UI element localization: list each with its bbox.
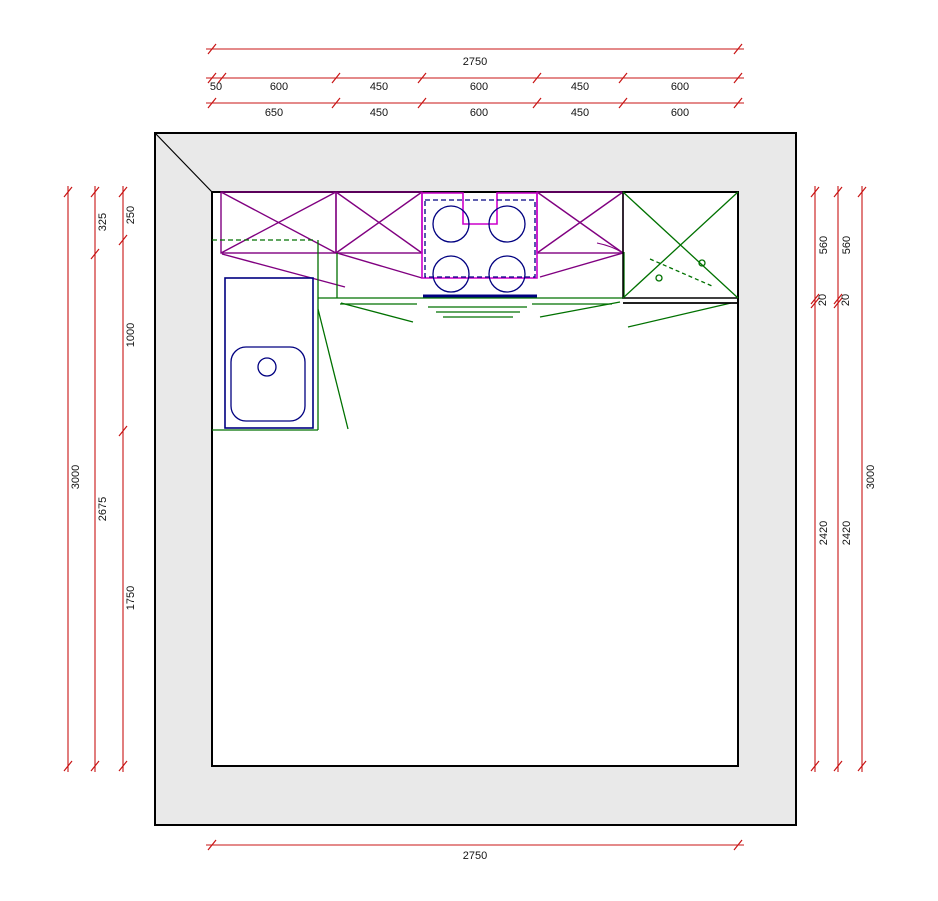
sink-outline	[225, 278, 313, 428]
base-door-swing-line	[318, 309, 348, 429]
dim-label: 2420	[841, 521, 853, 545]
dim-label: 3000	[865, 465, 877, 489]
burner-bottom-left	[433, 256, 469, 292]
dimension-top: 2750 50 600 450 600 450 600 650 450 600 …	[206, 44, 744, 119]
cabinet-door-swing-line	[540, 253, 623, 277]
dim-label: 1750	[125, 586, 137, 610]
dimension-left: 3000 325 2675 250 1000 1750	[64, 186, 137, 772]
dim-label: 325	[97, 213, 109, 231]
dim-label: 50	[210, 81, 222, 93]
tall-cabinet	[623, 192, 738, 303]
dim-label: 2750	[463, 56, 487, 68]
dim-label: 3000	[70, 465, 82, 489]
dimension-right: 560 20 2420 560 20 2420 3000	[811, 186, 877, 772]
hinge-symbol	[656, 275, 662, 281]
dimension-bottom: 2750	[206, 840, 744, 862]
dim-label: 1000	[125, 323, 137, 347]
dim-label: 600	[671, 81, 689, 93]
base-door-swing-line	[628, 303, 731, 327]
dim-label: 2750	[463, 850, 487, 862]
cooktop	[422, 193, 537, 296]
dim-label: 450	[571, 107, 589, 119]
base-door-swing-line	[341, 303, 413, 322]
wall-cabinet-450-left	[336, 192, 422, 253]
wall-cabinet-600-left	[221, 192, 336, 253]
dim-label: 560	[818, 236, 830, 254]
kitchen-floorplan-canvas: 2750 50 600 450 600 450 600 650 450 600 …	[0, 0, 938, 901]
dim-label: 600	[470, 81, 488, 93]
wall-cabinet-450-right	[537, 192, 623, 253]
dim-label: 560	[841, 236, 853, 254]
dim-label: 2675	[97, 497, 109, 521]
dim-label: 20	[840, 294, 852, 306]
cabinet-door-swing-line	[222, 254, 345, 287]
dim-label: 450	[370, 107, 388, 119]
dim-label: 450	[571, 81, 589, 93]
dim-label: 20	[817, 294, 829, 306]
burner-bottom-right	[489, 256, 525, 292]
hob-outline	[422, 193, 537, 278]
dim-label: 600	[270, 81, 288, 93]
dim-ticks-top	[208, 44, 742, 108]
sink-drain	[258, 358, 276, 376]
dim-label: 2420	[818, 521, 830, 545]
dim-label: 250	[125, 206, 137, 224]
worktop-lines	[212, 240, 731, 430]
dim-label: 450	[370, 81, 388, 93]
cabinet-door-swing-line	[337, 253, 422, 278]
sink-unit	[225, 278, 313, 428]
tall-cabinet-hinge-line	[650, 259, 712, 286]
floorplan-drawing: 2750 50 600 450 600 450 600 650 450 600 …	[0, 0, 938, 901]
dim-label: 600	[671, 107, 689, 119]
dim-label: 600	[470, 107, 488, 119]
dim-label: 650	[265, 107, 283, 119]
